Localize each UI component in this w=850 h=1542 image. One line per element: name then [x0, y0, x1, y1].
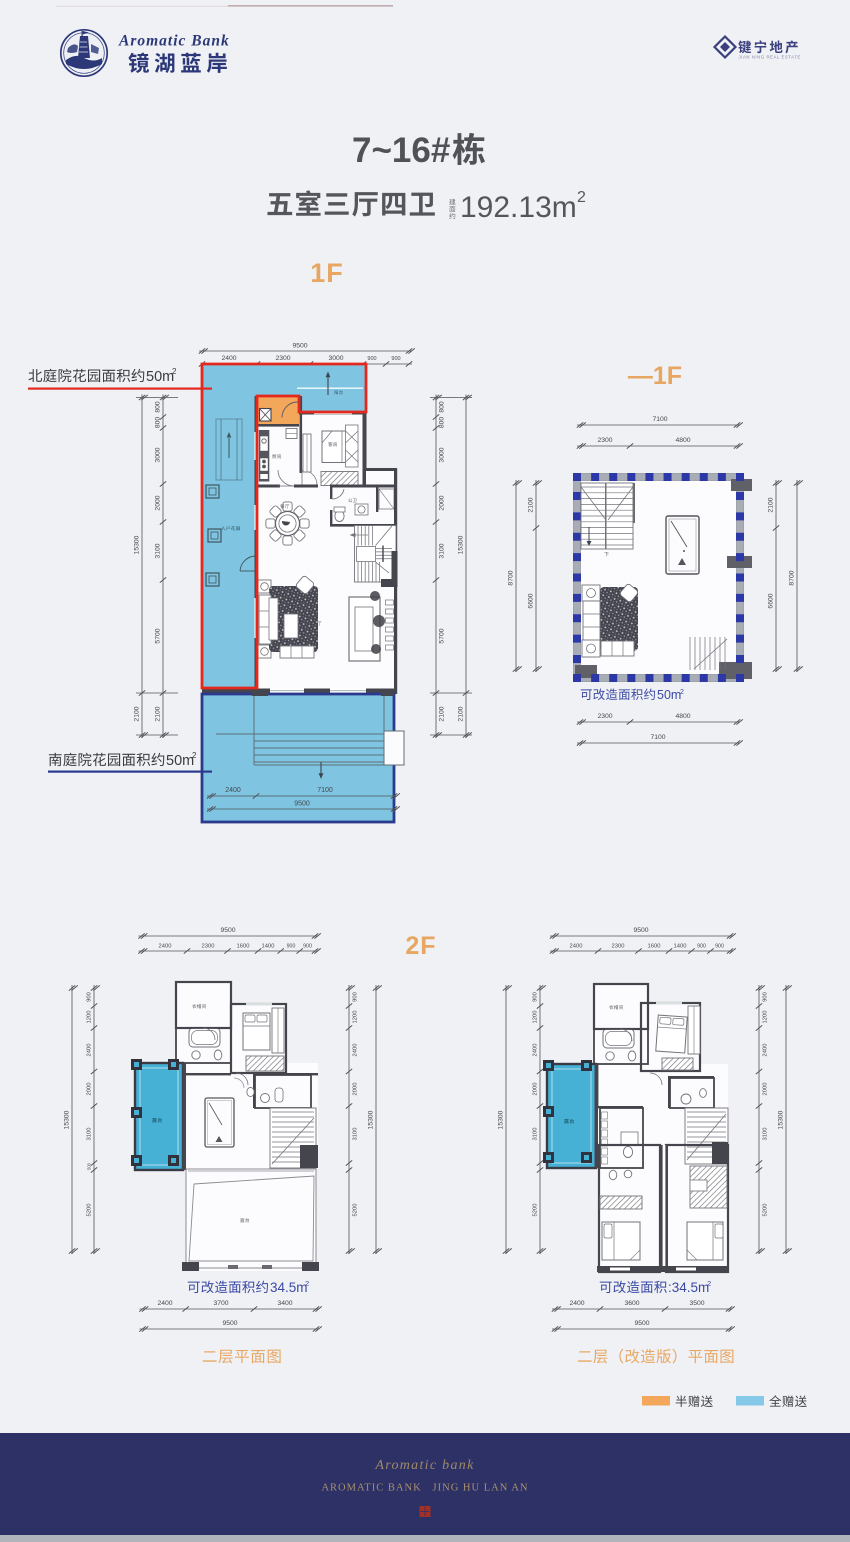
svg-text:5200: 5200 [763, 1204, 769, 1217]
svg-text:2: 2 [305, 1279, 309, 1288]
svg-text:50m: 50m [146, 369, 174, 385]
svg-text:2: 2 [172, 367, 177, 376]
svg-text:2: 2 [192, 751, 197, 760]
svg-text:2400: 2400 [157, 1300, 172, 1307]
svg-text:7100: 7100 [317, 787, 333, 794]
svg-text:1200: 1200 [763, 1011, 769, 1024]
svg-text:2300: 2300 [597, 437, 612, 444]
svg-text:5200: 5200 [87, 1204, 93, 1217]
svg-text:15300: 15300 [64, 1110, 71, 1129]
svg-text:2: 2 [707, 1279, 711, 1288]
svg-text:15300: 15300 [134, 535, 141, 554]
svg-text:3100: 3100 [353, 1128, 359, 1141]
svg-text:1600: 1600 [237, 944, 250, 950]
svg-text:2000: 2000 [763, 1083, 769, 1096]
svg-text:15300: 15300 [458, 535, 465, 554]
svg-text:900: 900 [391, 356, 400, 362]
svg-text:2400: 2400 [87, 1044, 93, 1057]
svg-text:3100: 3100 [763, 1128, 769, 1141]
svg-text:900: 900 [353, 992, 359, 1002]
svg-text:1F: 1F [310, 258, 344, 288]
svg-text:2100: 2100 [768, 497, 775, 512]
svg-text:50m: 50m [166, 753, 194, 769]
svg-text:8700: 8700 [789, 570, 796, 585]
svg-text:900: 900 [367, 356, 376, 362]
svg-text:2000: 2000 [533, 1083, 539, 1096]
svg-text:2300: 2300 [275, 355, 290, 362]
svg-text:900: 900 [715, 944, 724, 950]
svg-text:2400: 2400 [221, 355, 236, 362]
svg-text:4800: 4800 [675, 713, 690, 720]
svg-text:800: 800 [155, 417, 162, 429]
svg-text:3100: 3100 [155, 543, 162, 558]
svg-text:5200: 5200 [353, 1204, 359, 1217]
svg-text:2400: 2400 [570, 944, 583, 950]
svg-text:3100: 3100 [87, 1128, 93, 1141]
svg-text:900: 900 [303, 944, 312, 950]
svg-text:2000: 2000 [439, 495, 446, 510]
svg-text:9500: 9500 [294, 801, 310, 808]
svg-text:1400: 1400 [262, 944, 275, 950]
svg-text:2400: 2400 [763, 1044, 769, 1057]
svg-text:JIAN NING REAL ESTATE: JIAN NING REAL ESTATE [739, 55, 801, 60]
svg-text:2000: 2000 [353, 1083, 359, 1096]
svg-text:2100: 2100 [458, 706, 465, 721]
svg-text:9500: 9500 [633, 927, 648, 934]
svg-text:—1F: —1F [628, 362, 682, 390]
svg-text:192.13m: 192.13m [460, 191, 577, 224]
svg-text:2100: 2100 [155, 706, 162, 721]
svg-text:1200: 1200 [533, 1011, 539, 1024]
svg-text:3600: 3600 [624, 1300, 639, 1307]
svg-text:7~16#: 7~16# [352, 131, 450, 170]
svg-text:2300: 2300 [597, 713, 612, 720]
svg-text:800: 800 [439, 417, 446, 429]
svg-text:2400: 2400 [353, 1044, 359, 1057]
svg-text:Aromatic Bank: Aromatic Bank [118, 33, 230, 50]
svg-text:900: 900 [87, 992, 93, 1002]
svg-text:15300: 15300 [778, 1110, 785, 1129]
svg-text:2400: 2400 [533, 1044, 539, 1057]
svg-text:2: 2 [577, 189, 586, 206]
svg-text:800: 800 [439, 401, 446, 413]
svg-text:5700: 5700 [439, 628, 446, 643]
svg-text:800: 800 [155, 401, 162, 413]
svg-text:6600: 6600 [528, 593, 535, 608]
svg-text:2400: 2400 [159, 944, 172, 950]
svg-text:9500: 9500 [634, 1320, 649, 1327]
svg-text:2: 2 [680, 689, 684, 696]
svg-text:6600: 6600 [768, 593, 775, 608]
svg-text:7100: 7100 [652, 416, 667, 423]
svg-text:2100: 2100 [439, 706, 446, 721]
svg-text:2100: 2100 [134, 706, 141, 721]
svg-text:15300: 15300 [498, 1110, 505, 1129]
svg-text:1200: 1200 [353, 1011, 359, 1024]
svg-text:900: 900 [763, 992, 769, 1002]
svg-text:9500: 9500 [220, 927, 235, 934]
svg-text:34.5m: 34.5m [270, 1280, 308, 1295]
svg-text:8700: 8700 [508, 570, 515, 585]
svg-text:3400: 3400 [277, 1300, 292, 1307]
svg-text:9500: 9500 [292, 343, 307, 350]
svg-text:2300: 2300 [202, 944, 215, 950]
svg-text:900: 900 [533, 992, 539, 1002]
svg-text:3000: 3000 [155, 447, 162, 462]
svg-text::34.5m: :34.5m [668, 1280, 709, 1295]
svg-text:7100: 7100 [650, 734, 665, 741]
svg-text:2F: 2F [405, 932, 436, 960]
svg-text:AROMATIC BANK JING HU LAN AN: AROMATIC BANK JING HU LAN AN [321, 1483, 528, 1494]
svg-text:2100: 2100 [528, 497, 535, 512]
svg-text:2300: 2300 [612, 944, 625, 950]
svg-text:Aromatic bank: Aromatic bank [374, 1458, 474, 1473]
svg-text:900: 900 [287, 944, 296, 950]
svg-text:3500: 3500 [689, 1300, 704, 1307]
svg-text:1600: 1600 [648, 944, 661, 950]
svg-text:1200: 1200 [87, 1011, 93, 1024]
svg-text:5200: 5200 [533, 1204, 539, 1217]
svg-text:5700: 5700 [155, 628, 162, 643]
svg-text:9500: 9500 [222, 1320, 237, 1327]
svg-text:3700: 3700 [213, 1300, 228, 1307]
svg-text:3000: 3000 [328, 355, 343, 362]
svg-text:500: 500 [87, 1162, 92, 1170]
svg-text:4800: 4800 [675, 437, 690, 444]
svg-text:2000: 2000 [87, 1083, 93, 1096]
svg-text:900: 900 [697, 944, 706, 950]
svg-text:2400: 2400 [569, 1300, 584, 1307]
svg-text:3100: 3100 [439, 543, 446, 558]
svg-text:1400: 1400 [674, 944, 687, 950]
svg-text:2400: 2400 [225, 787, 241, 794]
svg-text:15300: 15300 [368, 1110, 375, 1129]
svg-text:3100: 3100 [533, 1128, 539, 1141]
svg-text:50m: 50m [657, 688, 681, 702]
svg-text:2000: 2000 [155, 495, 162, 510]
svg-text:3000: 3000 [439, 447, 446, 462]
